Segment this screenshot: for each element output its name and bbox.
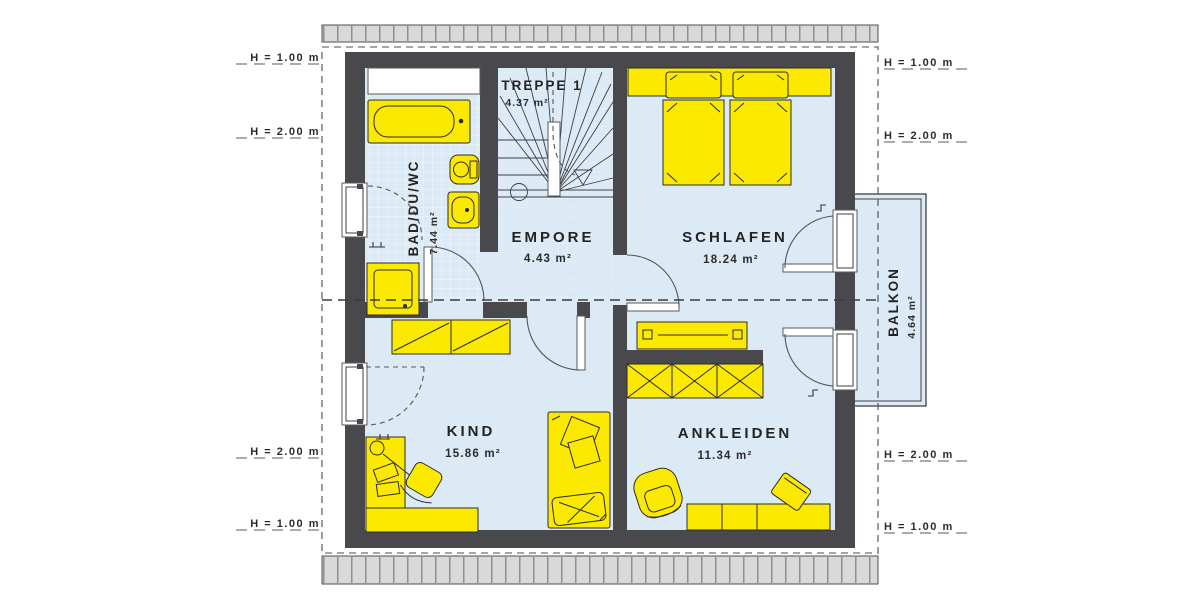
height-marker-label: H = 2.00 m <box>884 130 954 142</box>
bath-niche <box>368 68 480 94</box>
room-label-balkon: BALKON <box>886 267 901 337</box>
room-area-empore: 4.43 m² <box>524 253 572 265</box>
room-area-balkon: 4.64 m² <box>906 295 918 338</box>
wardrobe-kind <box>392 320 510 354</box>
height-marker-label: H = 1.00 m <box>250 52 320 64</box>
room-area-ankleiden: 11.34 m² <box>698 450 753 462</box>
height-marker-label: H = 2.00 m <box>884 449 954 461</box>
window-left-bad <box>342 183 367 237</box>
balcony-door-opening-ankleiden <box>833 330 857 390</box>
sideboard-passage <box>637 322 747 349</box>
x-wardrobe-ankleiden <box>627 364 763 398</box>
height-marker-label: H = 2.00 m <box>250 446 320 458</box>
sink <box>448 192 479 228</box>
shower <box>367 263 419 315</box>
height-markers-left: H = 1.00 m H = 2.00 m H = 2.00 m H = 1.0… <box>236 52 320 530</box>
room-label-bad: BAD/DU/WC <box>406 160 421 257</box>
roof-hatch-bottom <box>322 556 878 584</box>
window-left-kind <box>342 363 367 425</box>
bed-kind <box>548 412 610 528</box>
stair-stringer <box>548 122 560 196</box>
room-area-schlafen: 18.24 m² <box>703 254 759 266</box>
floorplan-canvas: TREPPE 1 4.37 m² BAD/DU/WC 7.44 m² EMPOR… <box>0 0 1200 600</box>
room-label-empore: EMPORE <box>511 229 594 246</box>
room-area-bad: 7.44 m² <box>428 211 440 254</box>
balcony-door-opening-schlafen <box>833 210 857 272</box>
bathtub <box>368 100 470 143</box>
floorplan-drawing: TREPPE 1 4.37 m² BAD/DU/WC 7.44 m² EMPOR… <box>0 0 1200 600</box>
height-marker-label: H = 1.00 m <box>884 57 954 69</box>
height-marker-label: H = 1.00 m <box>250 518 320 530</box>
room-area-kind: 15.86 m² <box>445 448 501 460</box>
height-marker-label: H = 1.00 m <box>884 521 954 533</box>
room-label-schlafen: SCHLAFEN <box>682 229 788 246</box>
room-label-ankleiden: ANKLEIDEN <box>678 425 793 442</box>
toilet <box>450 155 479 184</box>
height-marker-label: H = 2.00 m <box>250 126 320 138</box>
room-area-treppe: 4.37 m² <box>505 97 548 109</box>
roof-hatch-top <box>322 25 878 42</box>
room-label-treppe: TREPPE 1 <box>501 78 582 93</box>
room-label-kind: KIND <box>447 423 496 440</box>
